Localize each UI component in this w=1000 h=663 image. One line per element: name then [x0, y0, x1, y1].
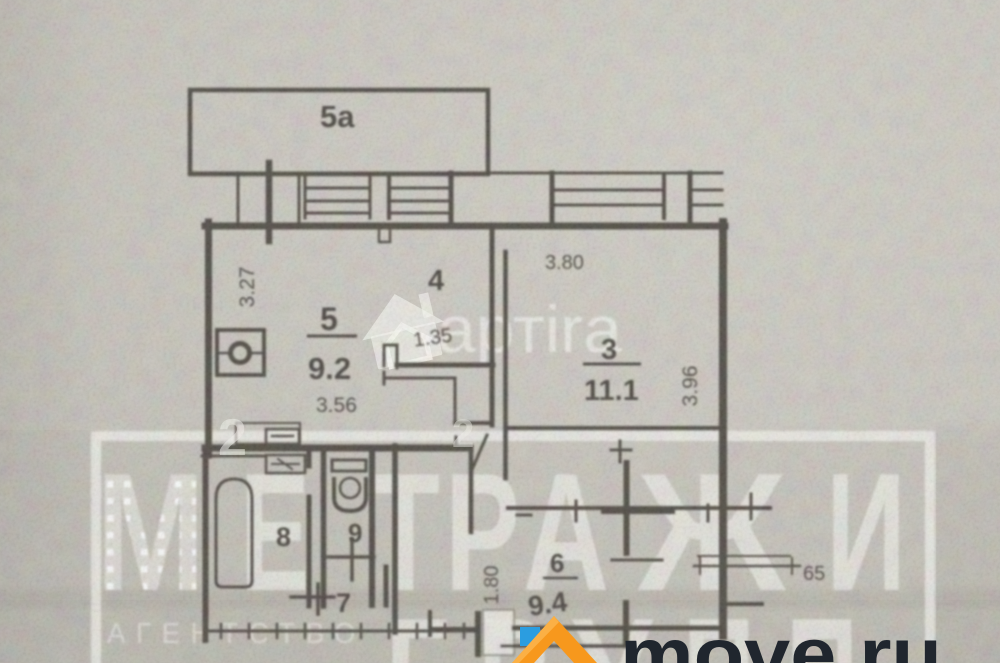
svg-text:move.ru: move.ru [620, 613, 942, 663]
